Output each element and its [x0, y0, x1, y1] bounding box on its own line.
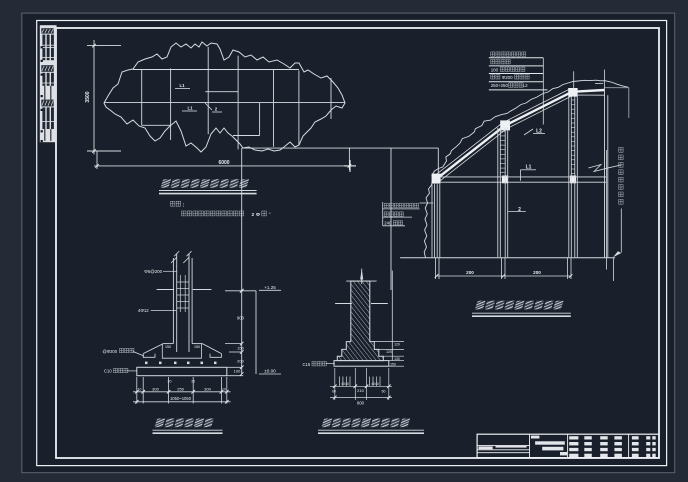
svg-text:20: 20 — [168, 379, 172, 383]
svg-text:200: 200 — [533, 270, 541, 275]
svg-text:C10: C10 — [104, 369, 112, 374]
svg-text:Φ200: Φ200 — [502, 75, 513, 80]
svg-text:10: 10 — [137, 387, 141, 391]
svg-text:Φ: Φ — [256, 212, 260, 218]
svg-text:900: 900 — [237, 316, 245, 321]
svg-text:800: 800 — [357, 401, 365, 406]
svg-text:250+250: 250+250 — [491, 83, 509, 88]
svg-text:100: 100 — [491, 67, 499, 72]
svg-text:240: 240 — [384, 221, 392, 226]
svg-text:°: ° — [269, 212, 271, 217]
svg-text:20: 20 — [191, 379, 195, 383]
svg-text:100: 100 — [234, 369, 241, 374]
svg-text:300: 300 — [204, 386, 211, 391]
svg-text:150: 150 — [237, 346, 244, 351]
svg-text:130: 130 — [394, 357, 400, 361]
svg-text:200: 200 — [466, 270, 474, 275]
svg-text:60: 60 — [382, 390, 386, 394]
svg-text:120: 120 — [394, 343, 400, 347]
svg-text:±0.00: ±0.00 — [264, 368, 276, 373]
svg-text:+1.25: +1.25 — [264, 285, 276, 290]
svg-text:210: 210 — [357, 388, 364, 393]
svg-text:150: 150 — [194, 345, 200, 349]
svg-text:4040: 4040 — [371, 382, 379, 386]
svg-text:6000: 6000 — [218, 160, 229, 166]
svg-text:300: 300 — [152, 386, 159, 391]
svg-text:@Φ200: @Φ200 — [103, 349, 118, 354]
svg-text:4Φ12: 4Φ12 — [138, 308, 149, 313]
svg-text:C15: C15 — [303, 362, 311, 367]
svg-text:L1: L1 — [187, 106, 193, 111]
svg-text:L2: L2 — [523, 83, 528, 88]
svg-text:4040: 4040 — [341, 382, 349, 386]
svg-text:2: 2 — [252, 212, 255, 218]
svg-text:L1: L1 — [179, 83, 185, 88]
svg-text:3500: 3500 — [85, 91, 91, 102]
svg-text:1050~1050: 1050~1050 — [170, 396, 192, 401]
svg-text:10: 10 — [222, 387, 226, 391]
svg-text:200: 200 — [237, 358, 244, 363]
svg-text:120: 120 — [386, 350, 392, 354]
svg-text:60: 60 — [332, 390, 336, 394]
svg-text:150: 150 — [390, 363, 396, 367]
svg-text:Φ6@200: Φ6@200 — [144, 269, 162, 274]
svg-text:250: 250 — [177, 386, 184, 391]
svg-text:150: 150 — [165, 345, 171, 349]
